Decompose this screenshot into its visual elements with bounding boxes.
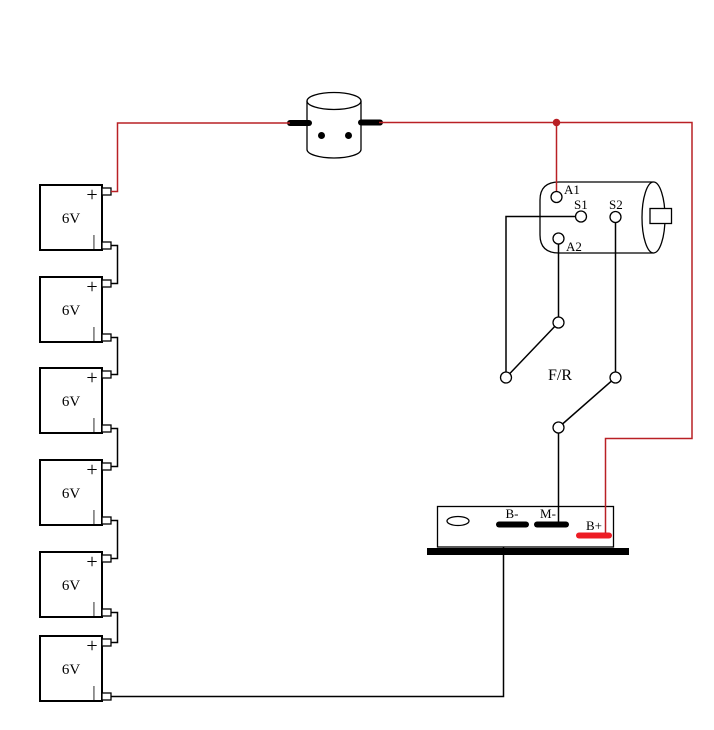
battery-minus-label: |	[92, 324, 95, 343]
motor-terminal-a1	[551, 192, 562, 203]
motor-terminal-s2	[610, 212, 621, 223]
fuse-contact-dot-right	[345, 132, 352, 139]
fuse-top	[307, 93, 361, 110]
battery-5: + | 6V	[40, 551, 111, 618]
battery-6: + | 6V	[40, 635, 111, 702]
switch-contact-left	[501, 372, 512, 383]
battery-minus-label: |	[92, 599, 95, 618]
battery-voltage-label: 6V	[62, 211, 81, 227]
circuit-diagram: + | 6V + | 6V + | 6V + | 6	[0, 0, 714, 730]
switch-blade-reverse	[559, 378, 616, 428]
battery-plus-tab	[102, 639, 111, 646]
battery-plus-tab	[102, 463, 111, 470]
wire-junction-dot	[553, 119, 561, 127]
battery-plus-tab	[102, 555, 111, 562]
battery-plus-label: +	[86, 276, 97, 298]
battery-minus-label: |	[92, 415, 95, 434]
battery-plus-label: +	[86, 635, 97, 657]
battery-minus-label: |	[92, 683, 95, 702]
battery-voltage-label: 6V	[62, 578, 81, 594]
speed-controller: B- M- B+	[427, 506, 629, 552]
wire-battery-5-6	[111, 613, 118, 643]
controller-b-plus-label: B+	[586, 518, 602, 533]
fuse	[290, 93, 380, 159]
circuit-diagram-canvas: + | 6V + | 6V + | 6V + | 6	[0, 0, 714, 730]
battery-plus-tab	[102, 188, 111, 195]
battery-minus-label: |	[92, 507, 95, 526]
wire-battery-3-4	[111, 429, 118, 467]
battery-plus-label: +	[86, 459, 97, 481]
battery-voltage-label: 6V	[62, 486, 81, 502]
battery-voltage-label: 6V	[62, 662, 81, 678]
controller-indicator	[447, 517, 469, 526]
battery-minus-tab	[102, 693, 111, 700]
battery-minus-tab	[102, 242, 111, 249]
battery-minus-tab	[102, 609, 111, 616]
battery-2: + | 6V	[40, 276, 111, 343]
battery-4: + | 6V	[40, 459, 111, 526]
controller-m-minus-label: M-	[540, 506, 556, 521]
battery-voltage-label: 6V	[62, 394, 81, 410]
power-wires-red	[111, 119, 692, 533]
battery-1: + | 6V	[40, 184, 111, 251]
switch-contact-top-middle	[553, 317, 564, 328]
battery-voltage-label: 6V	[62, 303, 81, 319]
wire-battery-2-3	[111, 338, 118, 375]
motor-terminal-s1-label: S1	[574, 197, 588, 212]
forward-reverse-switch: F/R	[501, 317, 622, 433]
battery-3: + | 6V	[40, 367, 111, 434]
motor-shaft	[650, 209, 672, 224]
switch-contact-right	[610, 372, 621, 383]
wire-battery-4-5	[111, 521, 118, 559]
switch-contact-bottom-middle	[553, 422, 564, 433]
battery-plus-label: +	[86, 367, 97, 389]
battery-plus-tab	[102, 280, 111, 287]
controller-b-minus-label: B-	[506, 506, 519, 521]
fuse-contact-dot-left	[318, 132, 325, 139]
motor-terminal-s2-label: S2	[609, 197, 623, 212]
battery-plus-label: +	[86, 551, 97, 573]
motor-terminal-a2	[553, 233, 564, 244]
battery-plus-tab	[102, 371, 111, 378]
battery-minus-tab	[102, 334, 111, 341]
wire-battery-plus-to-fuse	[111, 123, 290, 192]
motor-terminal-a2-label: A2	[566, 239, 582, 254]
battery-series-wires	[111, 246, 504, 697]
switch-label: F/R	[548, 367, 572, 384]
motor-terminal-s1	[576, 211, 587, 222]
battery-minus-tab	[102, 517, 111, 524]
battery-pack: + | 6V + | 6V + | 6V + | 6	[40, 184, 111, 702]
battery-minus-tab	[102, 425, 111, 432]
battery-minus-label: |	[92, 232, 95, 251]
motor-terminal-a1-label: A1	[564, 182, 580, 197]
battery-plus-label: +	[86, 184, 97, 206]
wire-battery-1-2	[111, 246, 118, 284]
